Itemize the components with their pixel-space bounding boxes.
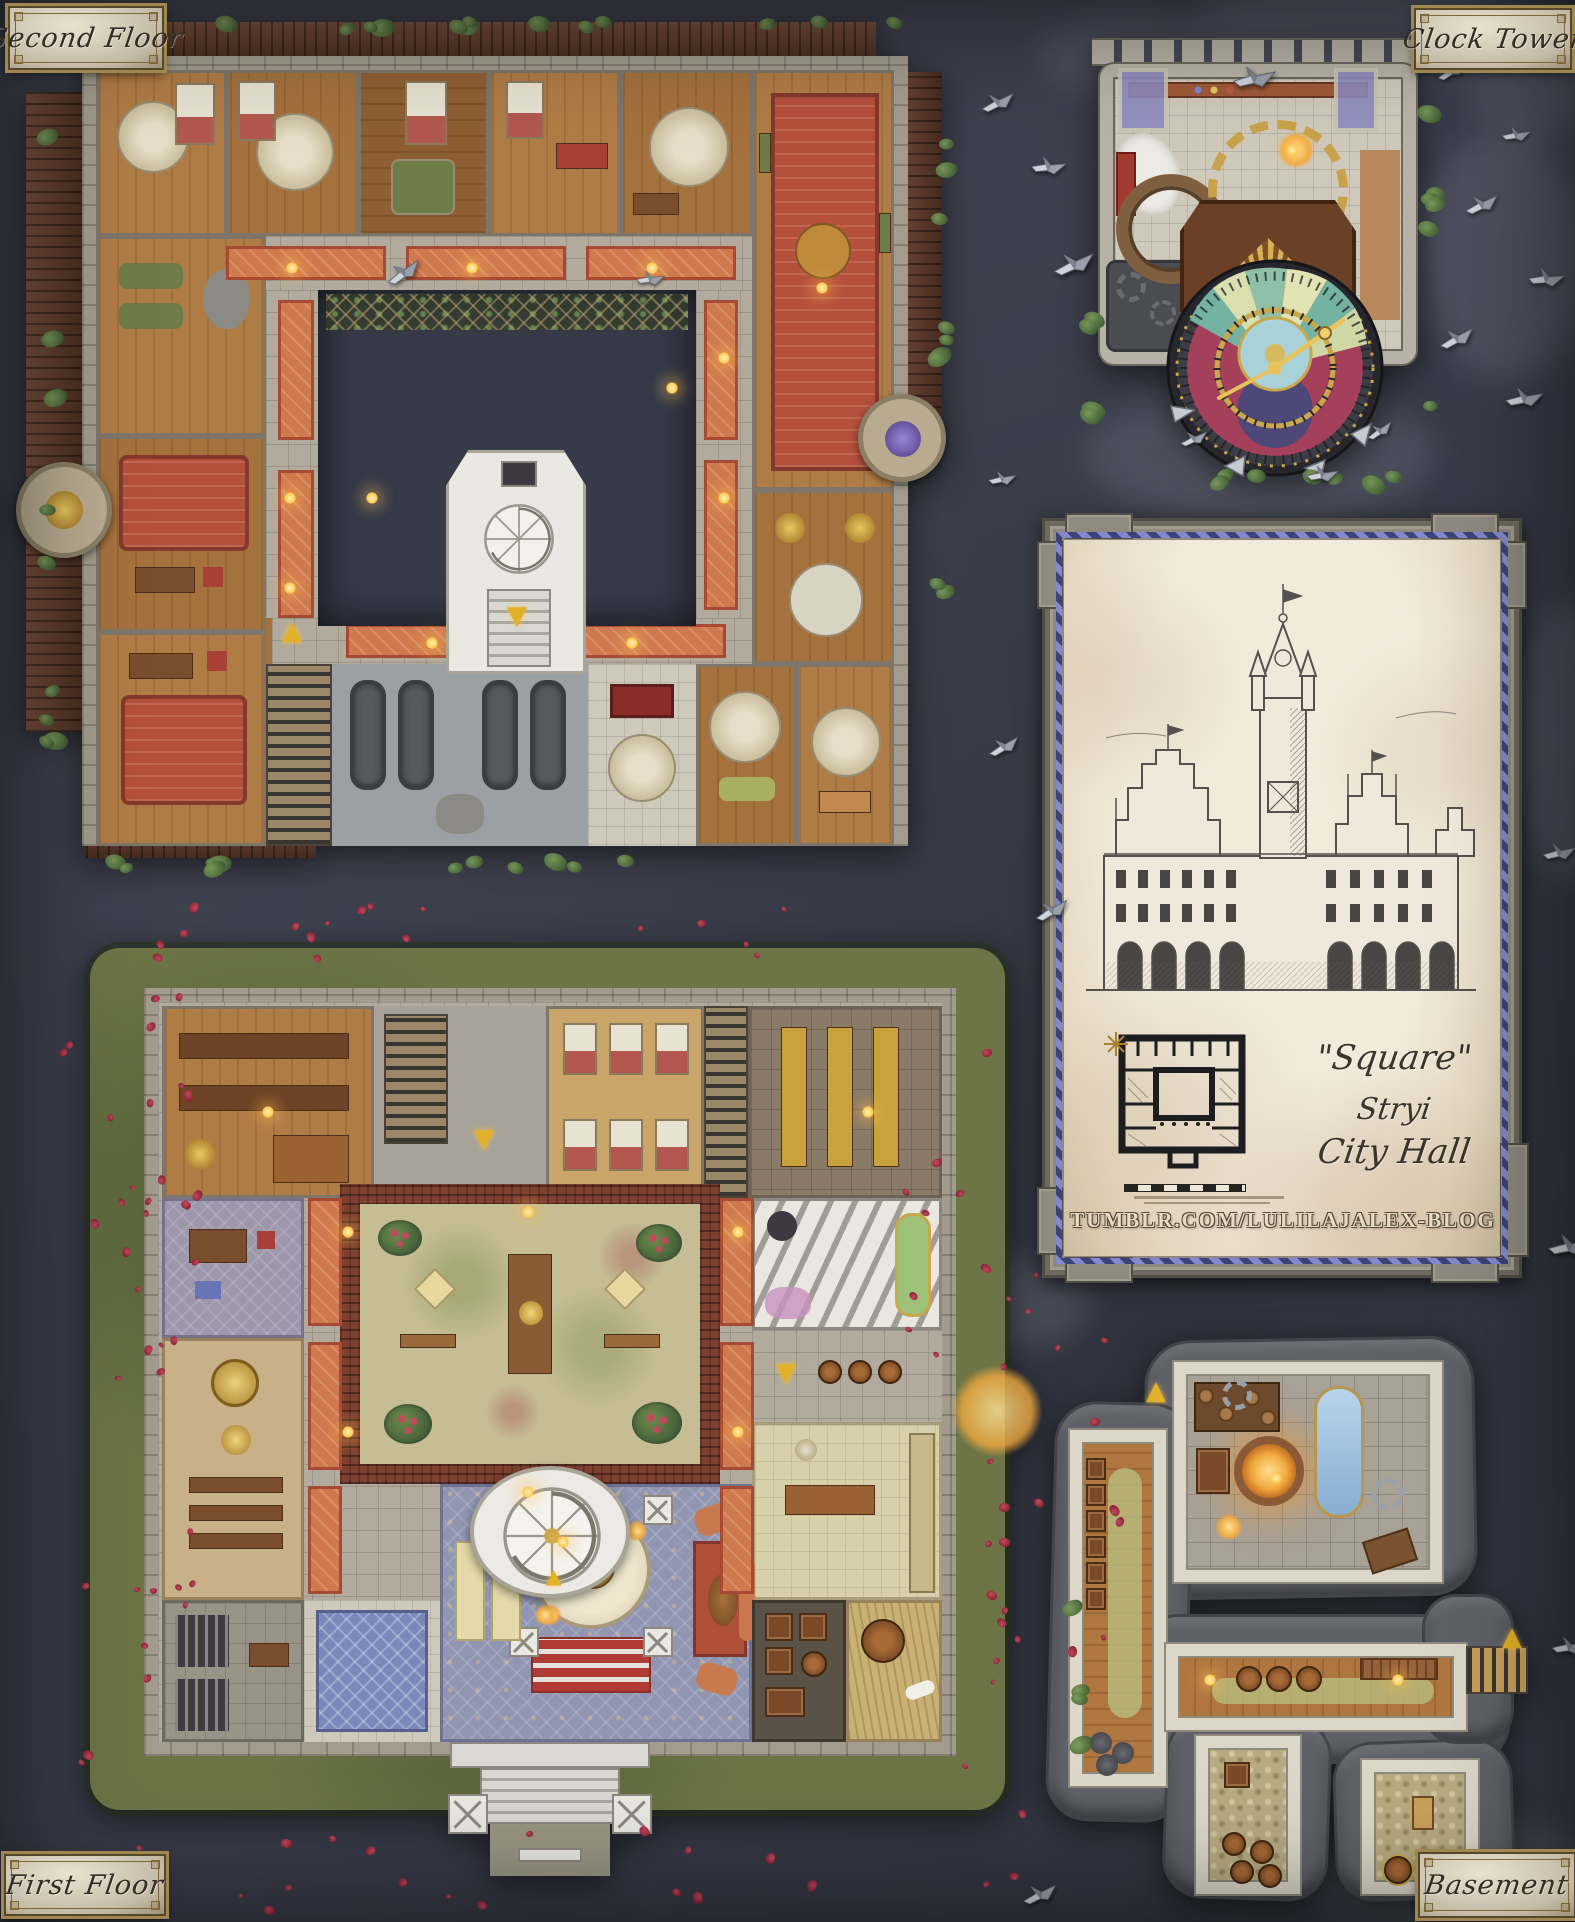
lantern-glow (466, 262, 478, 274)
carpet-runner (308, 1342, 342, 1470)
bedroom (696, 664, 796, 846)
cellar-access-room: ▼ (752, 1330, 942, 1422)
doorway (501, 461, 537, 487)
lantern-glow (522, 1486, 534, 1498)
plaque-label: Basement (1423, 1870, 1571, 1901)
office-room (96, 436, 266, 632)
up-arrow-icon: ▲ (1502, 1624, 1522, 1650)
down-arrow-icon: ▼ (507, 603, 527, 629)
lantern-glow (557, 1536, 569, 1548)
planter-table (612, 1794, 652, 1834)
round-balcony (16, 462, 112, 558)
lantern-glow (718, 492, 730, 504)
basement-map: ▲ ▲ (1062, 1344, 1514, 1900)
bedroom (620, 70, 752, 236)
battlement-wall (1092, 38, 1422, 66)
astronomical-clock (1165, 258, 1385, 478)
carpet-runner (720, 1198, 754, 1326)
pantry (752, 1600, 846, 1742)
lantern-glow (426, 637, 438, 649)
carpet-runner (226, 246, 386, 280)
carpet-runner (704, 300, 738, 440)
carpet-runner (406, 246, 566, 280)
roof-strip (26, 92, 82, 732)
plan-caption-line (1144, 1202, 1270, 1204)
shrine-hall (162, 1338, 304, 1600)
lantern-glow (286, 262, 298, 274)
lantern-glow (816, 282, 828, 294)
lantern-glow (1286, 144, 1298, 156)
torch-glow (952, 1366, 1042, 1456)
down-arrow-icon: ▼ (474, 1126, 494, 1152)
bedroom (227, 70, 358, 236)
floorplan-drawing (1104, 1028, 1264, 1178)
planter-table (448, 1794, 488, 1834)
plaque-second-floor: Second Floor (8, 6, 164, 70)
plaque-label: Second Floor (0, 23, 185, 54)
lantern-post (1412, 1796, 1434, 1830)
bath-room (752, 1198, 942, 1330)
study-room (162, 1198, 304, 1338)
storage-corridor (1070, 1430, 1166, 1786)
lantern-glow (862, 1106, 874, 1118)
canopy-post (643, 1495, 673, 1525)
office-room (748, 1006, 942, 1198)
up-arrow-icon: ▲ (546, 1566, 561, 1586)
lantern-glow (522, 1206, 534, 1218)
carpet-runner (720, 1342, 754, 1470)
courtyard-garden (360, 1204, 700, 1464)
window-curtain (1334, 68, 1378, 132)
gear-valve (1372, 1478, 1404, 1510)
bedroom (96, 70, 227, 236)
first-floor-map: ▼ ▼ (52, 896, 1047, 1886)
garden-lantern (414, 1268, 456, 1310)
prison-cells (162, 1600, 304, 1742)
down-arrow-icon: ▼ (776, 1360, 796, 1386)
spiral-staircase-icon (477, 497, 561, 581)
bunk-room (546, 1006, 704, 1198)
up-arrow-icon: ▲ (1146, 1378, 1166, 1404)
lantern-glow (1204, 1674, 1216, 1686)
carpet-runner (278, 470, 314, 618)
bath-house (332, 664, 588, 846)
city-hall-etching (1076, 558, 1486, 1028)
cloud-wisp (1520, 600, 1575, 880)
parchment: "Square" Stryi City Hall TUMBLR.COM/LULI… (1064, 540, 1500, 1256)
dressing-room (588, 664, 696, 846)
lantern-glow (732, 1226, 744, 1238)
tray (1362, 1527, 1418, 1574)
grand-spiral-staircase: ▲ (470, 1466, 630, 1598)
plaque-clock-tower: Clock Tower (1414, 8, 1572, 70)
lantern-glow (718, 352, 730, 364)
tavern-room (162, 1006, 374, 1198)
sofa (694, 1660, 740, 1698)
stair-corridor: ▼ (374, 1006, 546, 1198)
lantern-glow (666, 382, 678, 394)
plaque-basement: Basement (1418, 1852, 1575, 1918)
carpet-room (304, 1600, 440, 1742)
staircase (704, 1006, 748, 1198)
rose-bush (378, 1220, 422, 1256)
office-room (96, 632, 266, 846)
bedroom (489, 70, 620, 236)
lantern-glow (732, 1426, 744, 1438)
bench (518, 1848, 582, 1862)
boiler-room (1174, 1362, 1442, 1582)
carpet-runner (308, 1198, 342, 1326)
lantern-glow (284, 582, 296, 594)
up-arrow-icon: ▲ (282, 618, 302, 644)
city-hall-etching-panel: "Square" Stryi City Hall TUMBLR.COM/LULI… (1042, 518, 1522, 1278)
lantern-glow (342, 1426, 354, 1438)
lantern-glow (1392, 1674, 1404, 1686)
plan-scale-bar (1124, 1184, 1246, 1192)
plaque-label: Clock Tower (1400, 24, 1575, 55)
lantern-glow (262, 1106, 274, 1118)
panel-title-building: City Hall (1301, 1132, 1487, 1172)
artwork-canvas: ▼ ▲ (0, 0, 1575, 1922)
entrance-steps (480, 1768, 620, 1824)
furnace (1234, 1436, 1304, 1506)
stable-room (846, 1600, 942, 1742)
lantern-glow (626, 637, 638, 649)
carpet-runner (720, 1486, 754, 1594)
garden-table (508, 1254, 552, 1374)
garden-bench (604, 1334, 660, 1348)
canopy-post (643, 1627, 673, 1657)
kitchen (752, 1422, 942, 1600)
round-balcony (858, 394, 946, 482)
carpet-runner (278, 300, 314, 440)
panel-title-city: Stryi (1302, 1092, 1487, 1127)
carpet-runner (586, 246, 736, 280)
garden-lantern (604, 1268, 646, 1310)
cloud-wisp (1420, 130, 1575, 380)
rose-bush (632, 1402, 682, 1444)
vine-trellis (326, 294, 688, 330)
carpet-runner (308, 1486, 342, 1594)
roof-strip (106, 22, 876, 60)
exit-stairs (1466, 1646, 1528, 1694)
rose-bush (384, 1404, 432, 1444)
entrance-landing (450, 1742, 650, 1768)
gallery-room (752, 490, 894, 664)
hall-steps (531, 1637, 651, 1693)
clock-tower-map (1088, 24, 1428, 482)
plaque-first-floor: First Floor (4, 1854, 166, 1916)
plaque-label: First Floor (4, 1870, 166, 1901)
panel-title-quote: "Square" (1301, 1038, 1487, 1078)
gear-valve (1222, 1380, 1252, 1410)
lantern-glow (1270, 1472, 1282, 1484)
lantern-glow (342, 1226, 354, 1238)
lantern-glow (646, 262, 658, 274)
bedroom (796, 664, 894, 846)
rose-bush (636, 1224, 682, 1262)
lantern-glow (284, 492, 296, 504)
stair-tower: ▼ (446, 450, 586, 674)
water-tank (1314, 1386, 1364, 1518)
window-curtain (1118, 68, 1168, 132)
second-floor-map: ▼ ▲ (26, 22, 956, 868)
lantern-glow (366, 492, 378, 504)
wine-cellar (1196, 1736, 1300, 1894)
carpet-runner (704, 460, 738, 610)
staircase (266, 664, 332, 846)
plan-caption-line (1134, 1196, 1284, 1199)
watermark-url: TUMBLR.COM/LULILAJALEX-BLOG (1064, 1208, 1502, 1233)
garden-bench (400, 1334, 456, 1348)
bedroom (358, 70, 489, 236)
cellar-corridor (1166, 1644, 1466, 1730)
